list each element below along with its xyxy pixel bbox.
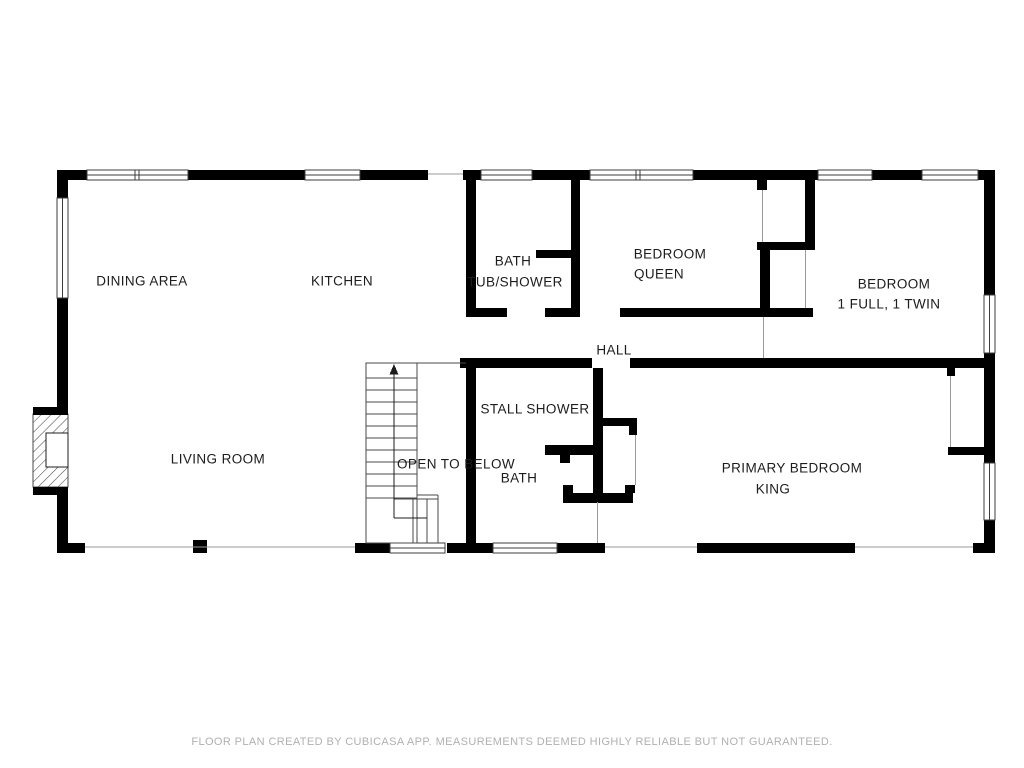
room-label-living-room: LIVING ROOM [171, 452, 265, 467]
room-label-primary-bedroom: PRIMARY BEDROOM [722, 461, 863, 476]
area-label-open-to-below: OPEN TO BELOW [397, 457, 515, 472]
room-label-bedroom-queen: BEDROOM [634, 247, 707, 262]
room-sublabel-bath-upper: TUB/SHOWER [467, 275, 563, 290]
room-label-bedroom-full-twin: BEDROOM [858, 277, 931, 292]
room-sublabel-bedroom-full-twin: 1 FULL, 1 TWIN [838, 297, 941, 312]
room-label-hall: HALL [596, 343, 631, 358]
room-label-bath-upper: BATH [495, 254, 532, 269]
room-label-dining-area: DINING AREA [96, 274, 187, 289]
floor-plan-page: DINING AREA KITCHEN BATH TUB/SHOWER BEDR… [0, 0, 1024, 768]
footer-disclaimer: FLOOR PLAN CREATED BY CUBICASA APP. MEAS… [191, 736, 832, 748]
fireplace-icon [33, 407, 68, 495]
room-label-bath-lower: BATH [501, 471, 538, 486]
interior-walls [460, 180, 988, 543]
room-label-kitchen: KITCHEN [311, 274, 373, 289]
room-label-stall-shower: STALL SHOWER [480, 402, 589, 417]
room-sublabel-primary-bedroom: KING [756, 482, 791, 497]
room-sublabel-bedroom-queen: QUEEN [634, 267, 684, 282]
stairs [366, 363, 466, 543]
floor-plan-drawing [0, 0, 1024, 768]
